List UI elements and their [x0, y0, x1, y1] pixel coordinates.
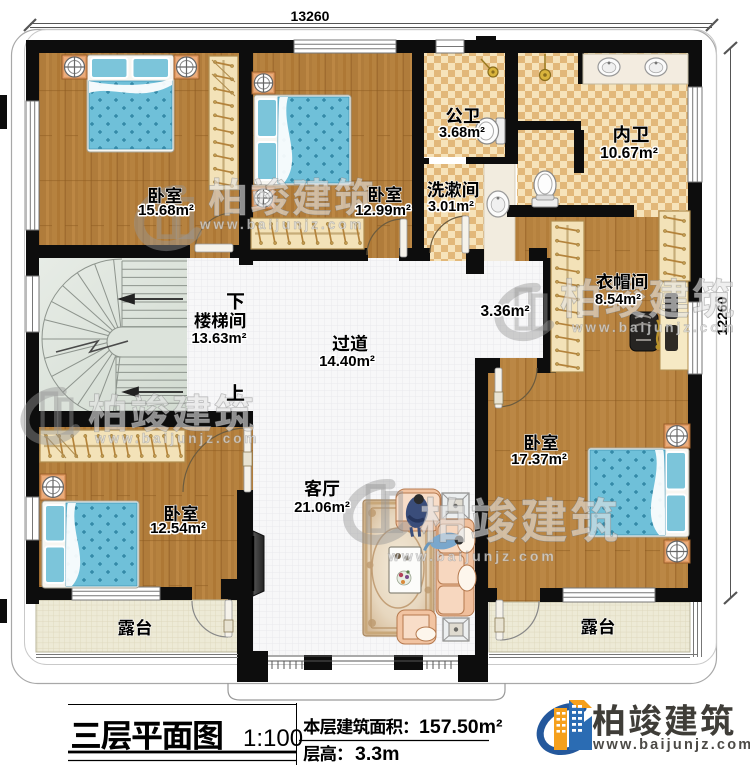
svg-text:14.40m²: 14.40m²	[319, 353, 375, 370]
svg-text:www.baijunjz.com: www.baijunjz.com	[387, 548, 557, 564]
svg-text:www.baijunjz.com: www.baijunjz.com	[571, 320, 737, 335]
svg-text:3.68m²: 3.68m²	[439, 125, 485, 141]
svg-text:3.3m: 3.3m	[355, 743, 399, 765]
svg-text:17.37m²: 17.37m²	[511, 451, 567, 468]
svg-text:www.baijunjz.com: www.baijunjz.com	[94, 431, 260, 446]
svg-text:12.54m²: 12.54m²	[150, 520, 206, 537]
svg-text:15.68m²: 15.68m²	[138, 202, 194, 219]
svg-text:8.54m²: 8.54m²	[595, 292, 641, 308]
svg-text:www.baijunjz.com: www.baijunjz.com	[592, 737, 750, 753]
svg-text:13.63m²: 13.63m²	[191, 331, 246, 347]
svg-text:13260: 13260	[291, 8, 330, 24]
svg-text:3.01m²: 3.01m²	[428, 199, 474, 215]
svg-text:1:100: 1:100	[243, 725, 303, 752]
svg-text:3.36m²: 3.36m²	[480, 303, 529, 320]
svg-text:www.baijunjz.com: www.baijunjz.com	[199, 217, 365, 232]
svg-text:157.50m²: 157.50m²	[419, 716, 503, 738]
svg-text:12.99m²: 12.99m²	[355, 202, 411, 219]
svg-text:21.06m²: 21.06m²	[294, 499, 350, 516]
svg-text:10.67m²: 10.67m²	[600, 145, 658, 162]
